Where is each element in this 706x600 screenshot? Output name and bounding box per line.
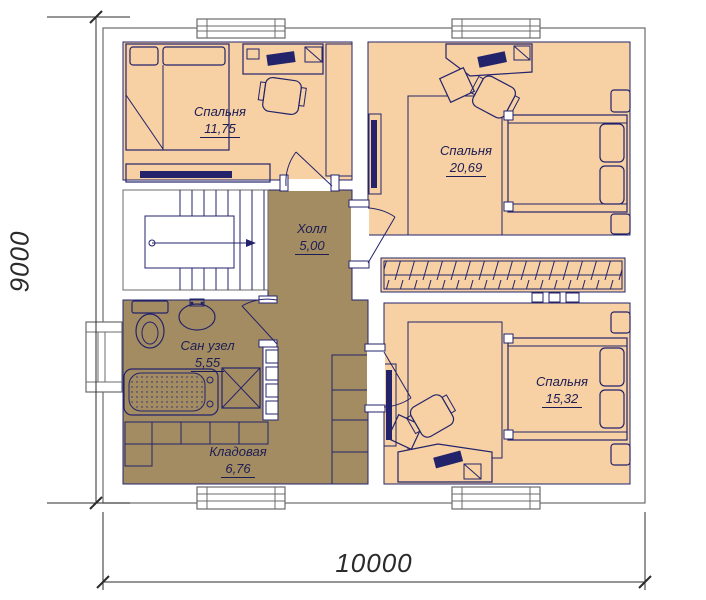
room-label-storage: Кладовая 6,76 xyxy=(178,444,298,478)
room-name: Сан узел xyxy=(155,338,260,354)
room-area: 5,55 xyxy=(191,355,224,373)
room-name: Спальня xyxy=(502,374,622,390)
room-name: Спальня xyxy=(406,143,526,159)
window-top-left xyxy=(197,19,285,38)
window-bottom-right xyxy=(452,487,540,509)
room-label-bedroom-tr: Спальня 20,69 xyxy=(406,143,526,177)
room-name: Кладовая xyxy=(178,444,298,460)
wardrobe-horizontal-hatch xyxy=(381,258,625,292)
room-name: Холл xyxy=(262,221,362,237)
room-area: 5,00 xyxy=(295,238,328,256)
room-label-hall: Холл 5,00 xyxy=(262,221,362,255)
window-bottom-left xyxy=(197,487,285,509)
window-top-right xyxy=(452,19,540,38)
room-label-bedroom-tl: Спальня 11,75 xyxy=(160,104,280,138)
nightstand-symbol xyxy=(611,214,630,234)
room-label-bathroom: Сан узел 5,55 xyxy=(155,338,260,372)
nightstand-symbol xyxy=(611,444,630,465)
window-left xyxy=(86,322,122,392)
vent-boxes xyxy=(532,293,579,302)
nightstand-symbol xyxy=(611,312,630,333)
room-area: 6,76 xyxy=(221,461,254,479)
room-name: Спальня xyxy=(160,104,280,120)
room-area: 11,75 xyxy=(200,121,240,139)
room-area: 15,32 xyxy=(542,391,583,409)
room-area: 20,69 xyxy=(446,160,487,178)
room-label-bedroom-br: Спальня 15,32 xyxy=(502,374,622,408)
desk-symbol xyxy=(243,44,323,74)
floor-plan-canvas: Спальня 11,75 Спальня 20,69 Холл 5,00 Са… xyxy=(0,0,706,600)
dimension-bottom: 10000 xyxy=(314,548,434,579)
dimension-left: 9000 xyxy=(5,212,36,312)
floor-plan-drawing xyxy=(0,0,706,600)
nightstand-symbol xyxy=(611,90,630,112)
